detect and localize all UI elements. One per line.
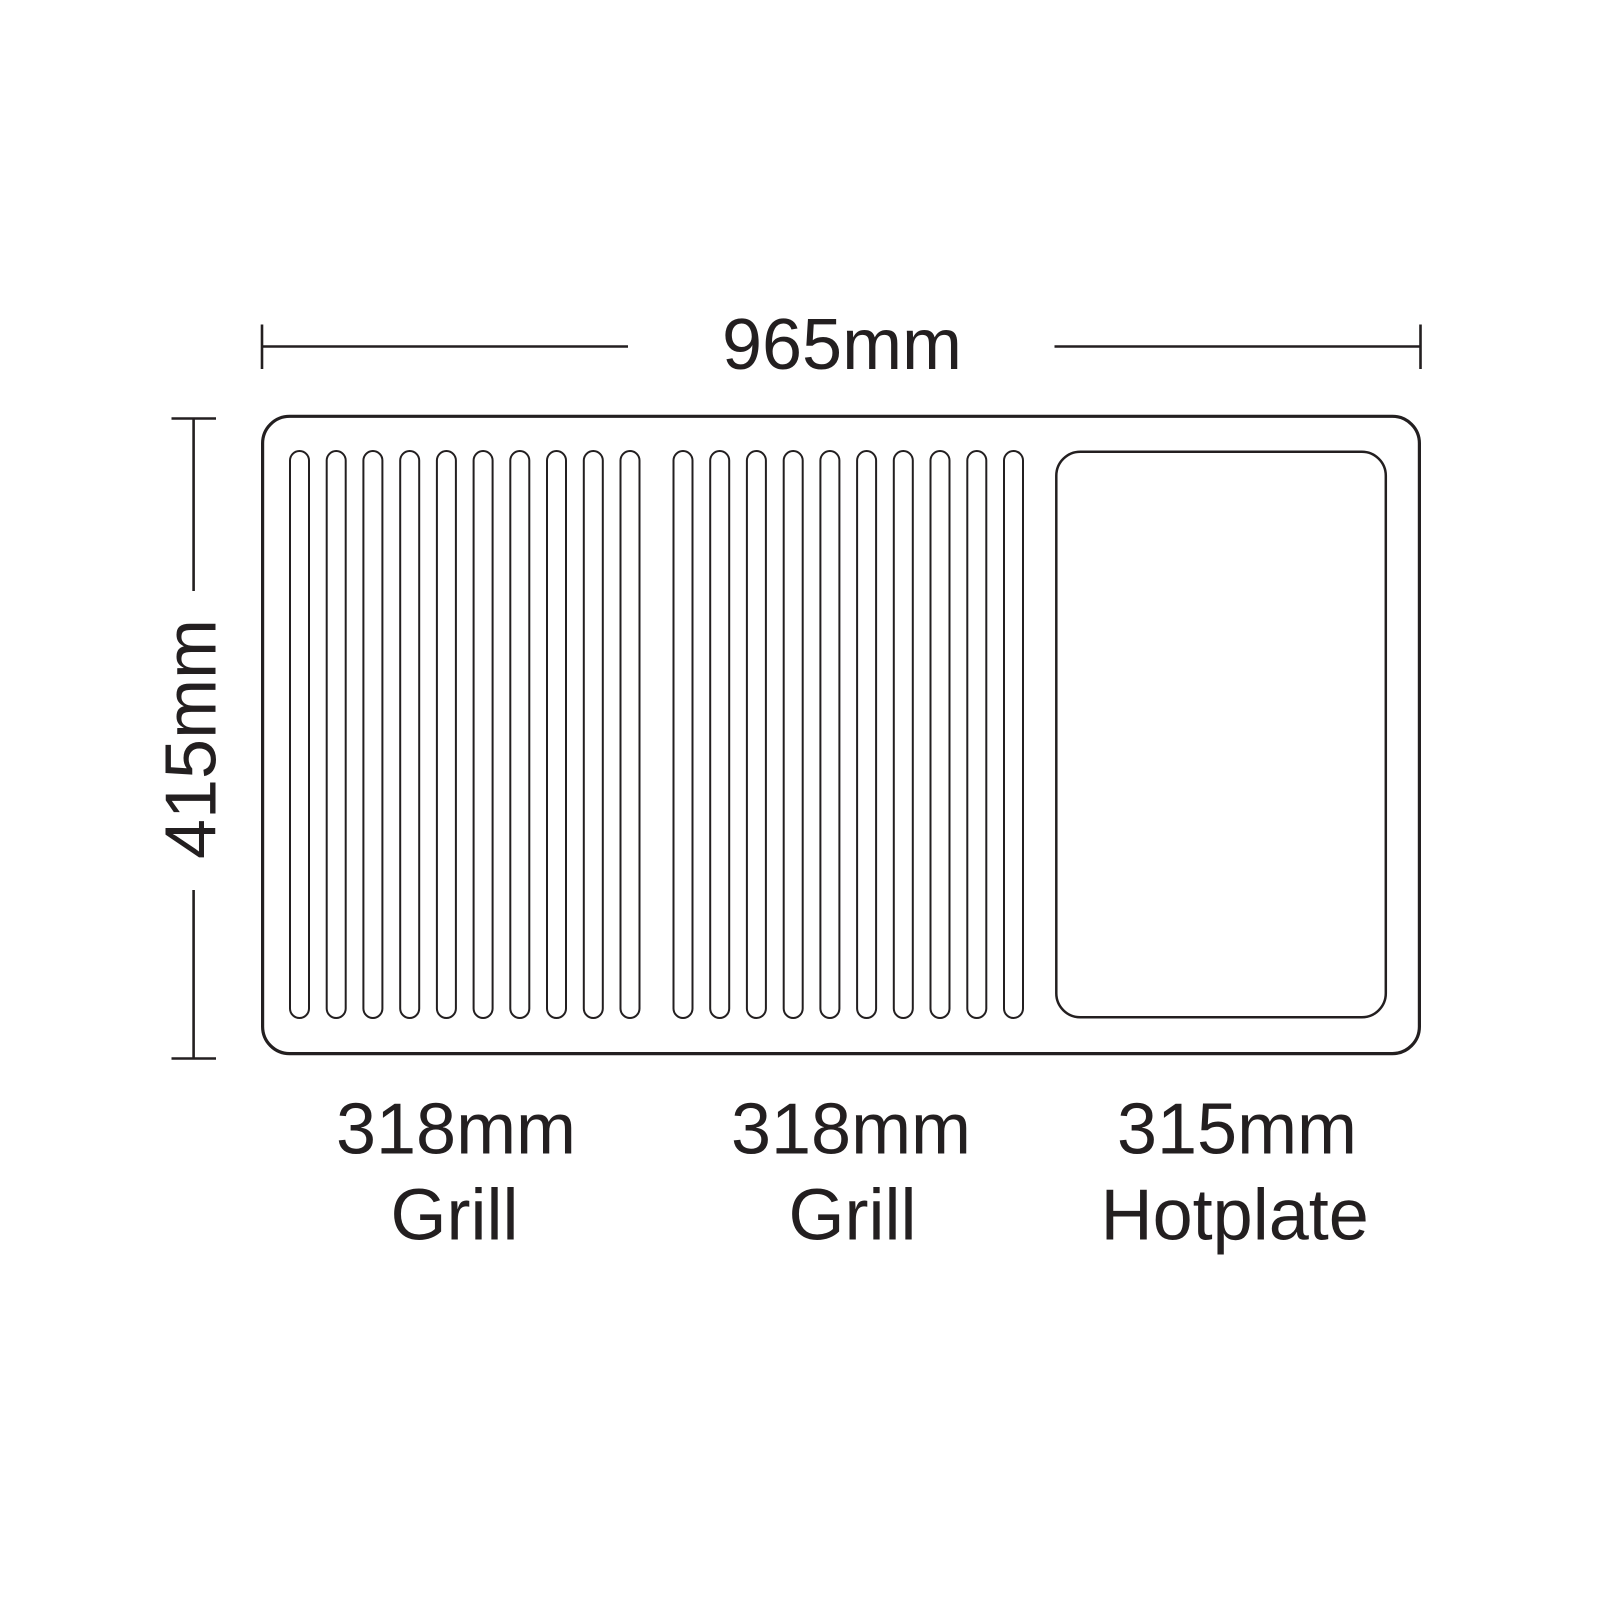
svg-text:415mm: 415mm [152, 619, 232, 859]
svg-text:Hotplate: Hotplate [1101, 1176, 1369, 1256]
svg-text:Grill: Grill [391, 1176, 519, 1256]
svg-text:318mm: 318mm [336, 1090, 576, 1170]
svg-text:315mm: 315mm [1117, 1090, 1357, 1170]
svg-text:Grill: Grill [789, 1176, 917, 1256]
svg-text:318mm: 318mm [731, 1090, 971, 1170]
svg-text:965mm: 965mm [722, 305, 962, 385]
